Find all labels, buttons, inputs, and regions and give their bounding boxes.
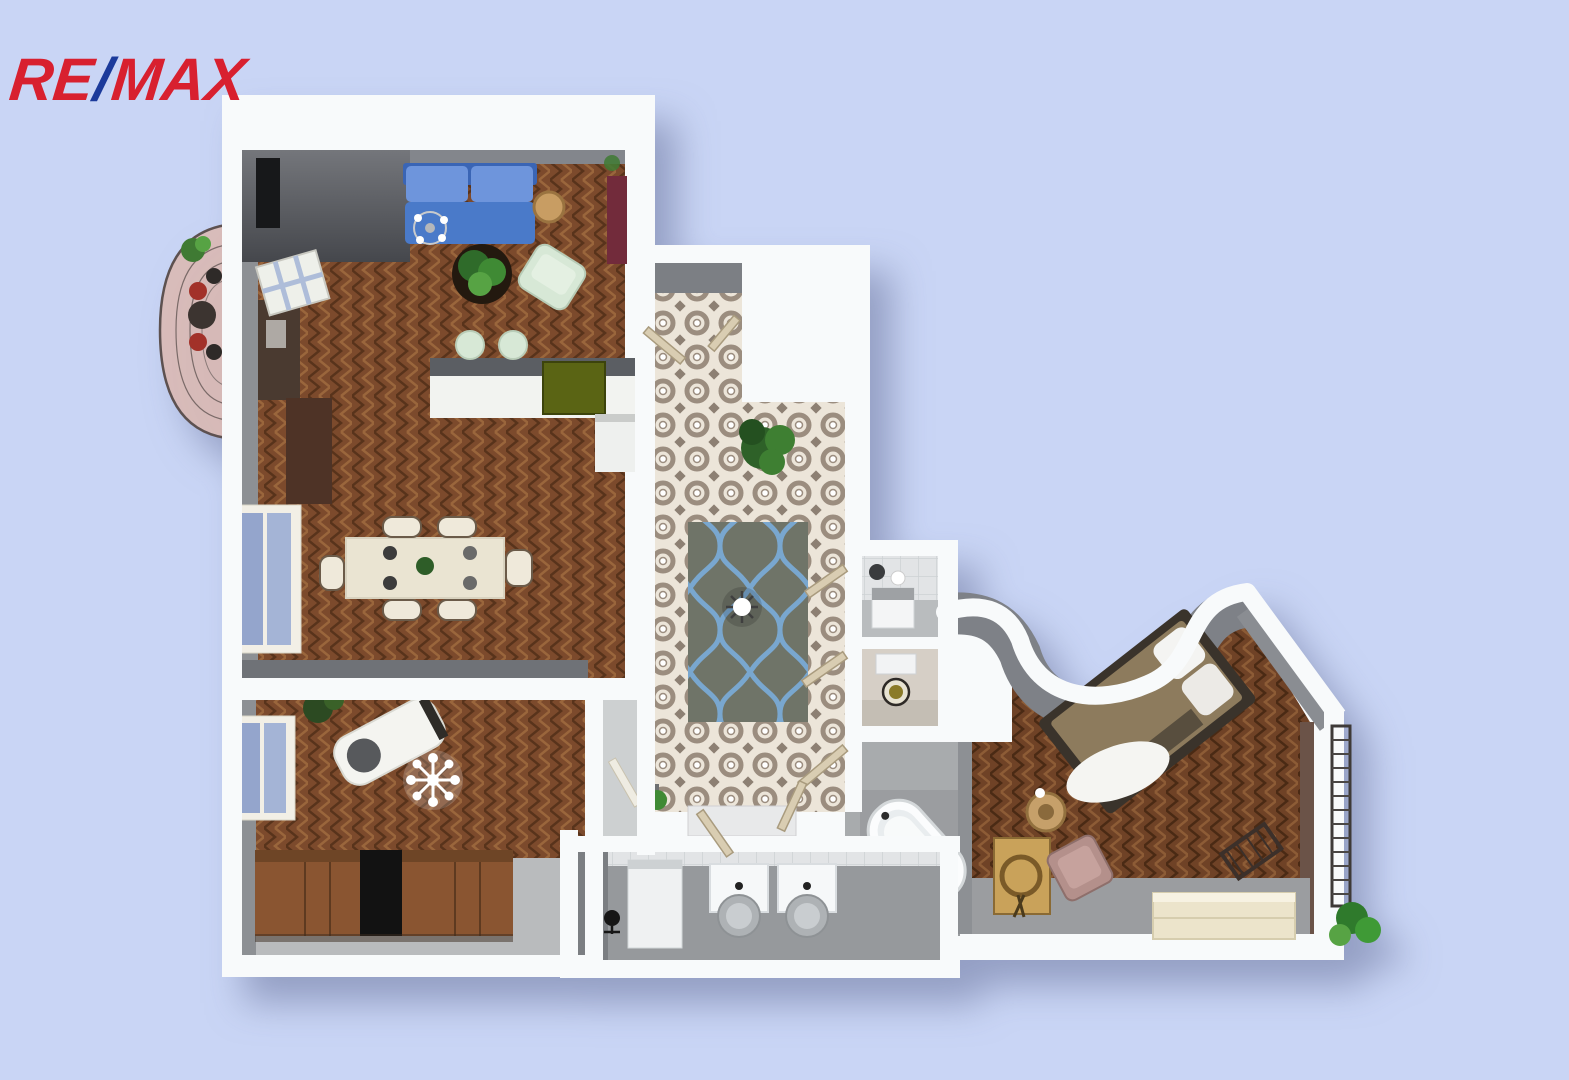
balcony-table: [188, 301, 216, 329]
sideboard: [286, 398, 332, 504]
wardrobe: [255, 850, 513, 942]
side-table: [534, 192, 564, 222]
logo-max: MAX: [109, 46, 249, 113]
potted-plant: [452, 244, 512, 304]
cooktop-glass: [543, 362, 605, 414]
bath-cabinet: [628, 860, 682, 948]
remax-logo: RE/MAX: [7, 50, 249, 110]
toilet-tank: [876, 654, 916, 674]
study-bedroom: [229, 690, 585, 958]
chandelier-icon: [403, 750, 463, 810]
balcony-chair: [189, 333, 207, 351]
kitchen-counter: [258, 300, 300, 400]
balcony-chair: [189, 282, 207, 300]
tall-cabinet: [607, 176, 627, 264]
tv-panel: [256, 158, 280, 228]
left-balcony: [160, 225, 226, 438]
bar-stool: [456, 331, 484, 359]
shower-room: [858, 556, 938, 638]
kitchen-sink: [266, 320, 286, 348]
floorplan-render: [0, 0, 1569, 1080]
living-dining-room: [229, 150, 635, 682]
sofa: [403, 163, 537, 244]
logo-re: RE: [7, 46, 97, 113]
wc: [858, 649, 938, 731]
dresser: [1153, 893, 1295, 939]
floorplan-canvas: RE/MAX: [0, 0, 1569, 1080]
mirror-cabinet: [994, 838, 1050, 917]
ceiling-light-icon: [722, 587, 762, 627]
bar-stool: [499, 331, 527, 359]
bathroom: [578, 848, 942, 960]
